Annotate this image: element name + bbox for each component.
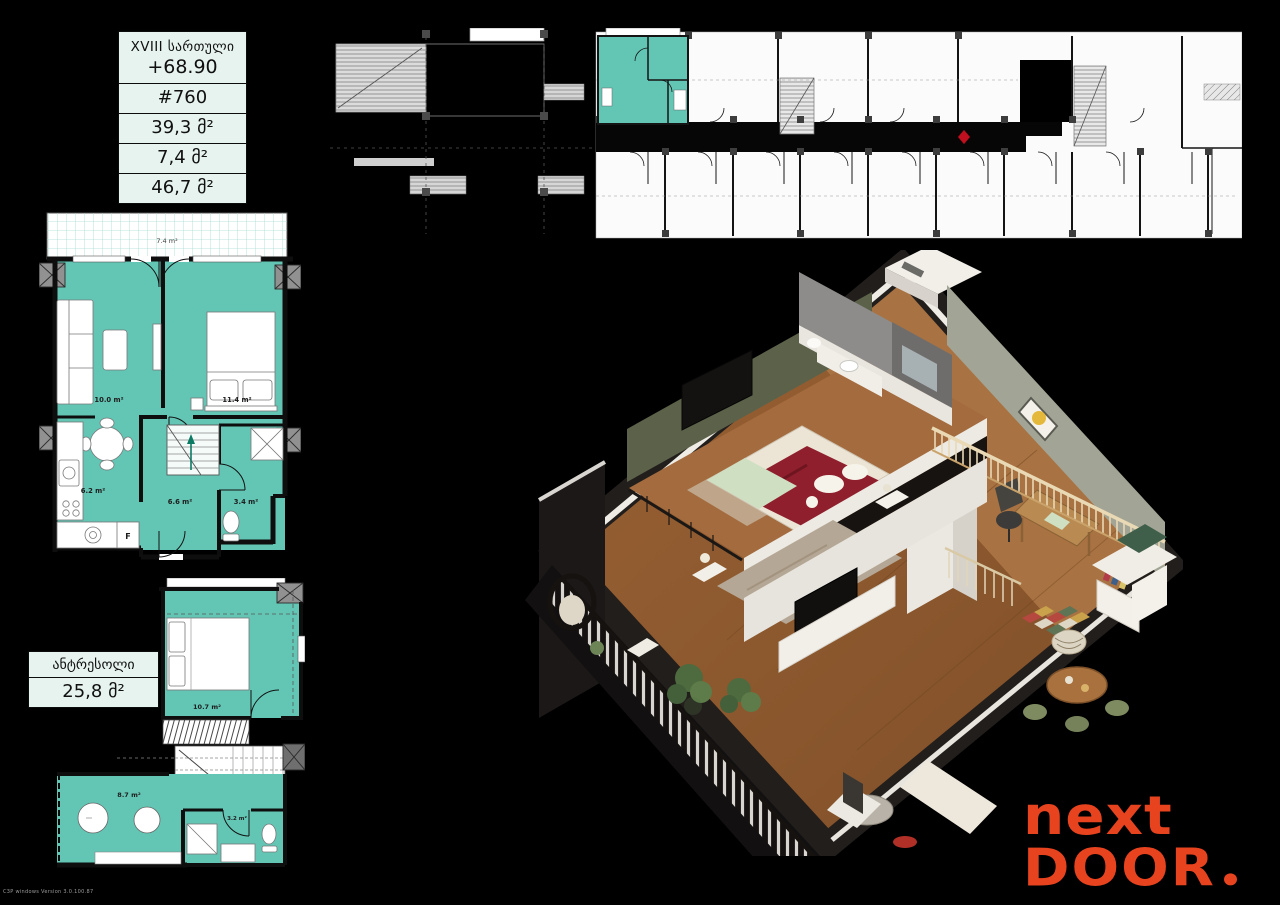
floor-label: XVIII სართული	[121, 35, 244, 55]
logo-dot	[1224, 873, 1237, 885]
elevation-value: +68.90	[121, 56, 244, 78]
hall-area-label: 6.6 m²	[168, 498, 192, 506]
area-balcony: 7,4 მ²	[119, 143, 246, 173]
area-total: 46,7 მ²	[119, 173, 246, 203]
fridge-label: F	[125, 532, 130, 541]
apartment-plan-mezzanine: 10.7 m²	[55, 578, 305, 880]
building-plan-highlight-unit	[598, 28, 688, 124]
right-wing-units	[596, 32, 1242, 238]
stairs	[167, 425, 219, 475]
left-wing-blackout	[330, 28, 596, 234]
roof-edge	[167, 578, 285, 587]
building-floor-plan	[330, 28, 1242, 240]
brochure-page: XVIII სართული +68.90 #760 39,3 მ² 7,4 მ²…	[0, 0, 1280, 905]
nextdoor-logo: next DOOR	[1023, 789, 1237, 899]
logo-word-next: next	[1023, 789, 1237, 842]
mezz-bathroom-area-label: 3.2 m²	[227, 815, 247, 822]
kitchen-area-label: 6.2 m²	[81, 487, 105, 495]
isometric-3d-render	[477, 250, 1183, 856]
mezz-bedroom-area-label: 10.7 m²	[193, 703, 221, 711]
area-inner: 39,3 მ²	[119, 113, 246, 143]
red-chair	[893, 836, 917, 848]
living-area-label: 10.0 m²	[94, 396, 123, 404]
mezz-lounge-area-label: 8.7 m²	[117, 791, 141, 799]
mezz-bedroom: 10.7 m²	[159, 583, 305, 720]
floor-elevation-row: XVIII სართული +68.90	[119, 32, 246, 83]
bathroom-area-label: 3.4 m²	[234, 498, 258, 506]
terrace-area-label: 7.4 m²	[156, 237, 178, 245]
unit-info-card: XVIII სართული +68.90 #760 39,3 მ² 7,4 მ²…	[118, 31, 247, 204]
small-plant	[590, 641, 604, 655]
striped-pouf	[1052, 630, 1086, 654]
apartment-plan-level1: 7.4 m²	[39, 212, 301, 572]
terrace: 7.4 m²	[47, 213, 287, 259]
watermark-text: C3P windows Version 3.0.100.87	[3, 889, 93, 895]
bedroom-area-label: 11.4 m²	[222, 396, 251, 404]
logo-word-door: DOOR	[1023, 843, 1237, 895]
unit-number: #760	[119, 83, 246, 113]
